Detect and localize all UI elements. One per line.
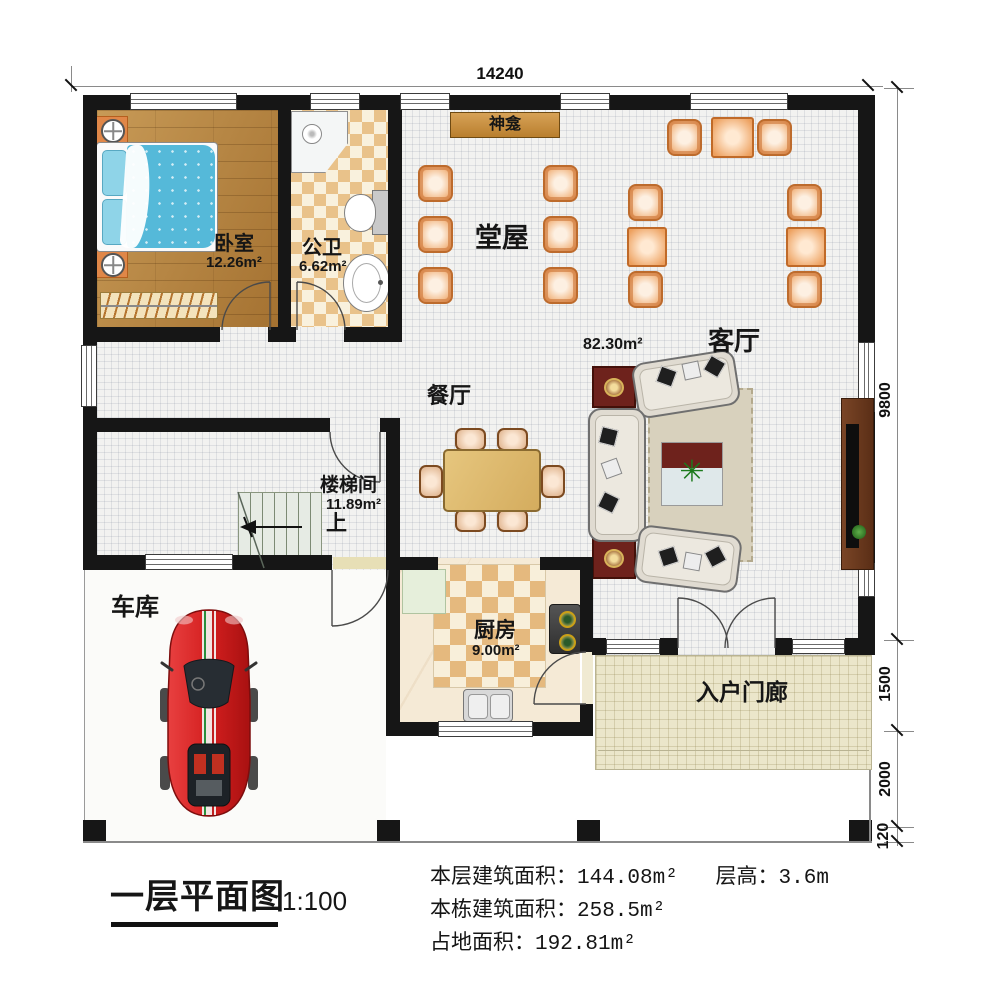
bed <box>96 142 218 252</box>
wardrobe <box>100 292 218 319</box>
faucet-icon <box>378 280 383 285</box>
wall <box>858 95 875 342</box>
room-label-dining: 餐厅 <box>427 384 471 407</box>
wall <box>360 95 400 110</box>
porch-step-line <box>598 750 869 751</box>
wall <box>533 722 593 736</box>
wall <box>278 110 291 327</box>
wall <box>83 418 330 432</box>
plan-scale: 1:100 <box>282 888 347 915</box>
stat-line-3: 占地面积：192.81m² <box>430 927 829 960</box>
dining-chair <box>455 509 486 532</box>
stair-up-label: 上 <box>326 513 347 535</box>
wall <box>400 557 438 570</box>
window <box>400 93 450 110</box>
hall-chair <box>757 119 792 156</box>
dim-label-right-9800: 9800 <box>877 365 895 435</box>
lamp-icon <box>101 253 125 277</box>
wall <box>344 327 402 342</box>
hall-chair <box>418 267 453 304</box>
wall <box>450 95 560 110</box>
column <box>377 820 400 842</box>
plan-title: 一层平面图 <box>110 880 285 916</box>
plant-icon <box>852 525 866 539</box>
wall <box>83 327 220 342</box>
window <box>438 721 533 737</box>
stove <box>549 604 581 654</box>
wall <box>775 638 792 655</box>
stat-height-label: 层高： <box>716 865 779 888</box>
car-top-view <box>158 604 260 822</box>
wall <box>237 95 310 110</box>
floor-plan-canvas: 神龛 ✳ <box>0 0 1000 990</box>
hall-chair <box>787 184 822 221</box>
wall <box>83 95 97 345</box>
hall-tea-table <box>711 117 754 158</box>
stat-floor-area-label: 本层建筑面积： <box>430 865 577 888</box>
window <box>606 639 660 654</box>
dining-table <box>443 449 541 512</box>
stat-floor-area-value: 144.08m² <box>577 867 678 890</box>
shrine-label: 神龛 <box>489 116 521 133</box>
hall-chair <box>418 165 453 202</box>
wall <box>592 638 606 655</box>
column <box>83 820 106 842</box>
kitchen-counter <box>402 569 446 614</box>
wall <box>268 327 296 342</box>
wall <box>386 555 400 736</box>
room-area-bedroom: 12.26m² <box>206 255 262 271</box>
kitchen-sink <box>463 689 513 722</box>
stat-line-2: 本栋建筑面积：258.5m² <box>430 894 829 927</box>
hall-chair <box>628 271 663 308</box>
side-table <box>592 366 636 408</box>
wall <box>233 555 332 570</box>
room-label-kitchen: 厨房 <box>474 620 516 642</box>
hall-chair <box>787 271 822 308</box>
stat-land-area-label: 占地面积： <box>430 931 535 954</box>
plant-icon: ✳ <box>679 458 704 488</box>
side-table <box>592 537 636 579</box>
window <box>690 93 788 110</box>
hall-chair <box>543 165 578 202</box>
wall <box>83 555 145 570</box>
room-area-stairwell: 11.89m² <box>326 497 381 513</box>
shower-head-icon <box>302 124 322 144</box>
burner-icon <box>559 634 576 651</box>
lamp-icon <box>101 119 125 143</box>
room-label-garage: 车库 <box>111 595 159 620</box>
garage-door-threshold <box>333 557 388 569</box>
room-label-stairwell: 楼梯间 <box>320 476 377 496</box>
wall <box>388 110 402 327</box>
wall <box>386 722 438 736</box>
plan-stats: 本层建筑面积：144.08m² 层高：3.6m 本栋建筑面积：258.5m² 占… <box>430 861 829 960</box>
site-boundary-right <box>869 770 871 842</box>
sofa-pillow <box>681 360 701 380</box>
room-label-bathroom: 公卫 <box>302 238 342 259</box>
window <box>310 93 360 110</box>
stat-height-value: 3.6m <box>779 867 829 890</box>
dining-chair <box>541 465 565 498</box>
sink-basin <box>490 694 510 719</box>
wall <box>845 638 875 655</box>
dining-chair <box>497 509 528 532</box>
sofa-pillow <box>683 552 703 572</box>
window <box>560 93 610 110</box>
burner-icon <box>559 611 576 628</box>
stat-line-1: 本层建筑面积：144.08m² 层高：3.6m <box>430 861 829 894</box>
nightstand <box>96 250 128 278</box>
coffee-table: ✳ <box>661 442 723 506</box>
room-label-bedroom: 卧室 <box>214 234 254 255</box>
shrine-cabinet: 神龛 <box>450 112 560 138</box>
dim-label-right-1500: 1500 <box>877 649 895 719</box>
dining-chair <box>497 428 528 451</box>
title-underline <box>111 922 278 927</box>
wall <box>386 418 400 570</box>
hall-chair <box>418 216 453 253</box>
wall <box>610 95 690 110</box>
hall-chair <box>667 119 702 156</box>
wall <box>660 638 678 655</box>
kitchen-porch-threshold <box>582 652 593 704</box>
dim-line-top <box>71 86 883 87</box>
window <box>145 554 233 570</box>
hall-chair <box>543 267 578 304</box>
stat-land-area-value: 192.81m² <box>535 933 636 956</box>
room-label-hall: 堂屋 <box>475 224 529 252</box>
nightstand <box>96 116 128 144</box>
hall-tea-table <box>627 227 667 267</box>
room-area-kitchen: 9.00m² <box>472 643 520 659</box>
window <box>792 639 845 654</box>
room-area-living: 82.30m² <box>583 337 643 354</box>
bathroom-sink <box>343 254 390 312</box>
room-area-bathroom: 6.62m² <box>299 259 347 275</box>
stat-building-area-label: 本栋建筑面积： <box>430 898 577 921</box>
site-boundary-bottom <box>83 841 872 843</box>
dining-chair <box>455 428 486 451</box>
sink-basin <box>352 263 381 303</box>
hall-tea-table <box>786 227 826 267</box>
wardrobe-rod <box>101 305 217 307</box>
window <box>130 93 237 110</box>
hall-chair <box>628 184 663 221</box>
dim-tick <box>862 79 875 92</box>
tv-cabinet <box>841 398 874 570</box>
window <box>81 345 97 407</box>
sink-basin <box>468 694 488 719</box>
toilet-symbol <box>344 194 376 232</box>
stat-building-area-value: 258.5m² <box>577 900 665 923</box>
room-label-living: 客厅 <box>708 328 760 355</box>
column <box>577 820 600 842</box>
dim-label-top: 14240 <box>460 64 540 84</box>
dining-chair <box>419 465 443 498</box>
porch-floor <box>595 655 872 770</box>
room-label-porch: 入户门廊 <box>696 680 788 704</box>
dim-label-right-120: 120 <box>875 801 893 871</box>
hall-chair <box>543 216 578 253</box>
